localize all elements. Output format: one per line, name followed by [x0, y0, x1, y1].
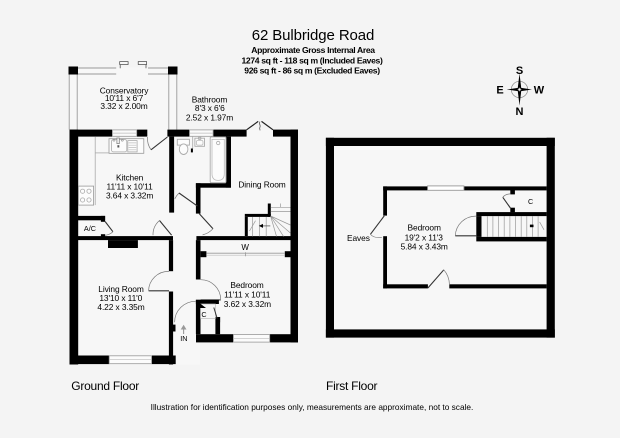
- svg-text:3.64 x 3.32m: 3.64 x 3.32m: [106, 190, 153, 200]
- svg-text:Ground Floor: Ground Floor: [71, 379, 139, 393]
- svg-text:A/C: A/C: [84, 224, 96, 233]
- svg-text:11'11 x 10'11: 11'11 x 10'11: [224, 290, 271, 300]
- svg-text:Bedroom: Bedroom: [230, 280, 263, 290]
- svg-text:E: E: [496, 85, 503, 97]
- svg-text:W: W: [534, 85, 545, 97]
- svg-text:C: C: [528, 197, 533, 206]
- svg-text:W: W: [241, 243, 249, 252]
- svg-text:5.84 x 3.43m: 5.84 x 3.43m: [401, 242, 448, 252]
- svg-text:926 sq ft - 86 sq m (Excluded: 926 sq ft - 86 sq m (Excluded Eaves): [244, 66, 380, 76]
- svg-text:1274 sq ft - 118 sq m (Include: 1274 sq ft - 118 sq m (Included Eaves): [242, 55, 383, 65]
- svg-text:3.32 x 2.00m: 3.32 x 2.00m: [100, 101, 147, 111]
- svg-text:3.62 x 3.32m: 3.62 x 3.32m: [224, 299, 271, 309]
- svg-text:Dining Room: Dining Room: [238, 180, 285, 190]
- svg-text:Illustration for identificatio: Illustration for identification purposes…: [151, 402, 474, 412]
- svg-text:N: N: [516, 106, 524, 118]
- svg-text:4.22 x 3.35m: 4.22 x 3.35m: [97, 302, 144, 312]
- svg-text:First Floor: First Floor: [326, 379, 378, 393]
- svg-text:62 Bulbridge Road: 62 Bulbridge Road: [252, 27, 375, 44]
- svg-text:2.52 x 1.97m: 2.52 x 1.97m: [186, 112, 233, 122]
- svg-text:IN: IN: [180, 334, 187, 343]
- svg-text:Bedroom: Bedroom: [408, 223, 441, 233]
- svg-text:C: C: [201, 310, 206, 319]
- svg-text:Approximate Gross Internal Are: Approximate Gross Internal Area: [251, 45, 375, 55]
- svg-text:Eaves: Eaves: [347, 233, 370, 243]
